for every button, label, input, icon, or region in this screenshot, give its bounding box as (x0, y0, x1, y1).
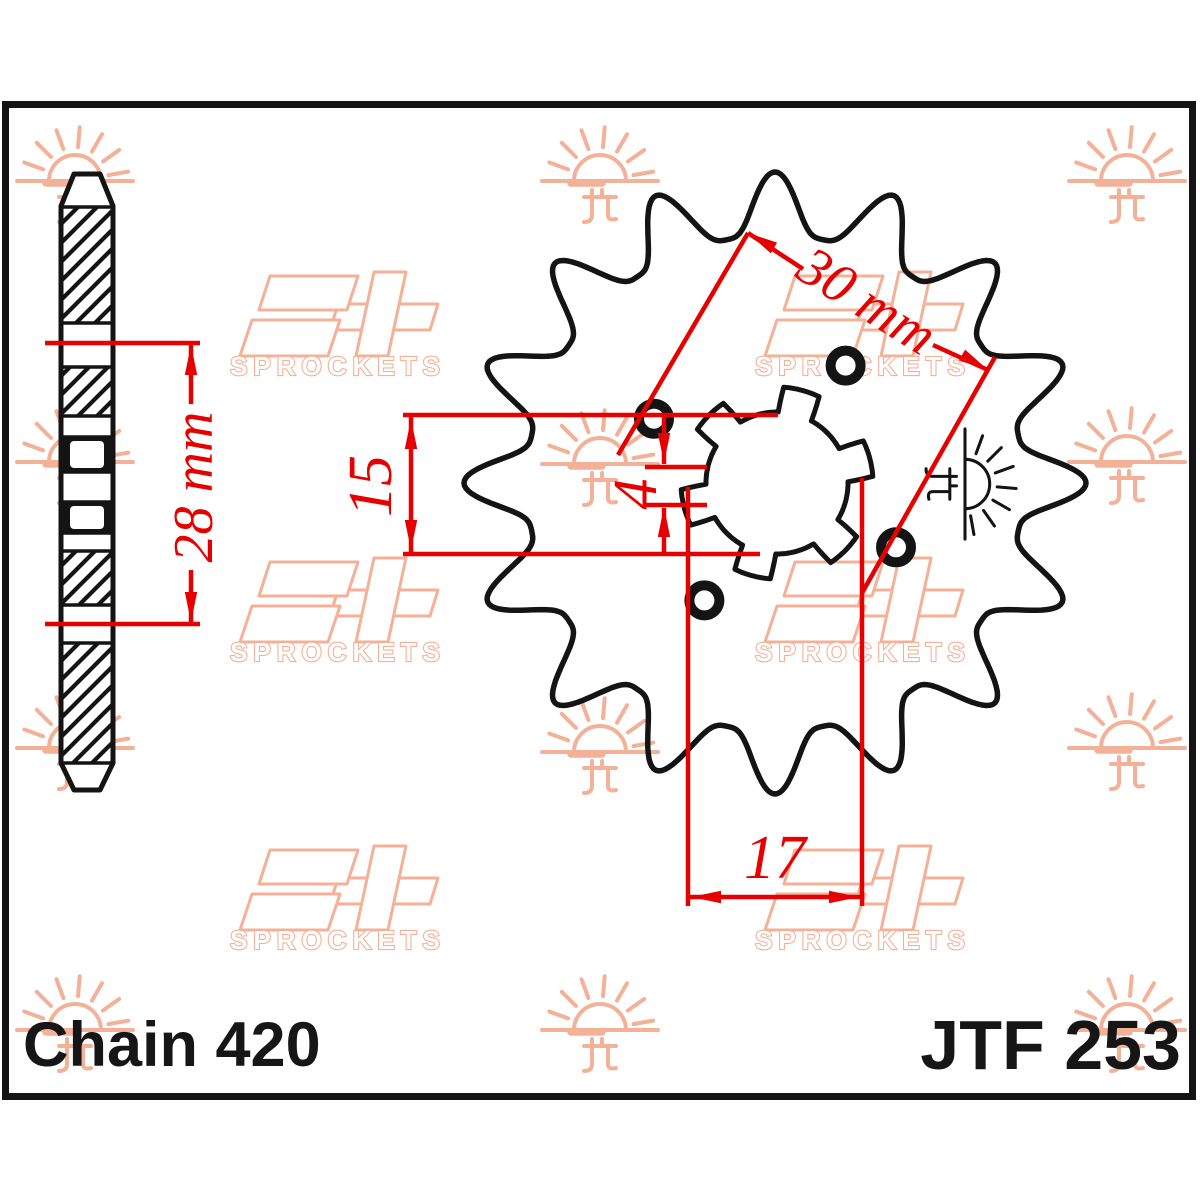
dim-17-label: 17 (744, 824, 809, 892)
sun-watermark-icon (542, 127, 658, 222)
sprockets-watermark-text: SPROCKETS (230, 637, 446, 667)
sprocket-drawing-page: SPROCKETSSPROCKETSSPROCKETSSPROCKETSSPRO… (0, 0, 1200, 1200)
dimension-arrowhead (185, 345, 197, 375)
spline-section-bore (70, 506, 104, 529)
dimension-arrowhead (405, 419, 417, 449)
jt-sprockets-logo-watermark: SPROCKETS (230, 558, 446, 667)
bolt-hole (831, 351, 861, 381)
sprockets-watermark-text: SPROCKETS (755, 925, 971, 955)
dimension-arrowhead (691, 891, 721, 903)
section-hatch (63, 551, 111, 605)
section-hatch (63, 643, 111, 763)
dimension-arrowhead (405, 520, 417, 550)
drawing-border-frame (6, 105, 1193, 1097)
dimension-arrowhead (185, 592, 197, 622)
sprockets-watermark-text: SPROCKETS (230, 925, 446, 955)
spline-section-bore (70, 441, 104, 468)
sun-watermark-icon (1069, 694, 1185, 789)
sun-watermark-icon (1069, 127, 1185, 222)
jt-sprockets-logo-watermark: SPROCKETS (230, 272, 446, 381)
dimension-arrowhead (658, 507, 670, 537)
sprockets-watermark-text: SPROCKETS (230, 351, 446, 381)
sun-watermark-icon (542, 698, 658, 793)
section-hatch (63, 207, 111, 323)
chain-size-label: Chain 420 (23, 1010, 321, 1080)
sprocket-front-view (464, 172, 1086, 794)
sun-watermark-icon (542, 976, 658, 1071)
jt-sun-stamp-icon (926, 429, 1016, 539)
sprocket-technical-drawing: SPROCKETSSPROCKETSSPROCKETSSPROCKETSSPRO… (0, 0, 1200, 1200)
part-number-label: JTF 253 (920, 1006, 1181, 1084)
dim-4-label: 4 (602, 479, 670, 510)
bolt-hole (689, 585, 719, 615)
jt-sprockets-logo-watermark: SPROCKETS (230, 846, 446, 955)
dim-15-label: 15 (337, 455, 405, 517)
sprocket-side-view (61, 174, 113, 790)
dim-28mm-label: 28 mm (163, 412, 225, 563)
section-hatch (63, 367, 111, 416)
dimension-arrowhead (658, 433, 670, 463)
